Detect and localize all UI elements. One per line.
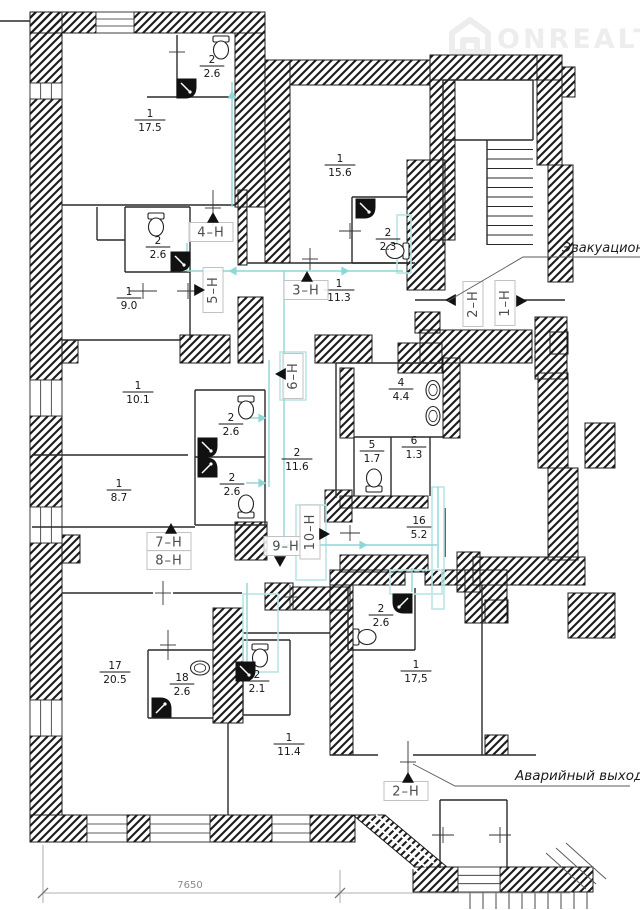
room-number: 1 [116, 478, 123, 490]
room-number: 16 [412, 515, 426, 527]
room-area: 11.6 [285, 461, 309, 473]
shower-arrow-head [182, 263, 185, 266]
wall-hatch [500, 867, 593, 892]
window [30, 700, 62, 736]
shower-icon [356, 199, 375, 218]
watermark-text: ONREALT [497, 24, 640, 55]
dimension-label: 7650 [177, 880, 202, 891]
wall-hatch [340, 496, 428, 508]
shower-arrow-head [367, 210, 370, 213]
wall-hatch [210, 815, 272, 842]
wall-hatch [443, 358, 460, 438]
evacuation-label: Эвакуацион [561, 241, 640, 256]
unit-label: 5–Н [203, 268, 223, 313]
wall-hatch [413, 867, 458, 892]
wall-hatch [325, 490, 352, 522]
wall-hatch [235, 522, 267, 560]
room-number: 2 [228, 412, 235, 424]
shower-icon [198, 458, 217, 477]
sink-icon [426, 407, 440, 426]
room-area: 2.3 [380, 241, 397, 253]
floor-plan-drawing: ONREALT 117.522.6115.622.322.619.0111.31… [0, 0, 640, 910]
room-number: 2 [155, 235, 162, 247]
unit-label-text: 9–Н [272, 540, 300, 555]
toilet-icon [353, 629, 376, 645]
room-area: 2.6 [204, 68, 221, 80]
shower-icon [393, 594, 412, 613]
room-number: 1 [337, 153, 344, 165]
wall-hatch [485, 735, 508, 755]
toilet-icon [238, 396, 254, 419]
wall-hatch [407, 160, 445, 290]
room-area: 2.1 [249, 683, 266, 695]
wall-hatch [330, 570, 405, 585]
room-area: 2.6 [373, 617, 390, 629]
toilet-icon [238, 495, 254, 518]
wall-hatch [398, 343, 442, 373]
wall-hatch [235, 33, 265, 207]
wall-hatch [265, 60, 290, 263]
wall-hatch [485, 600, 508, 623]
room-area: 20.5 [103, 674, 126, 686]
wall-hatch [62, 340, 78, 363]
unit-label-text: 2–Н [392, 785, 420, 800]
shower-arrow-head [188, 90, 191, 93]
sink-icon [191, 661, 210, 675]
room-number: 1 [126, 286, 133, 298]
shower-icon [171, 252, 190, 271]
toilet-icon [213, 36, 229, 59]
unit-label-text: 4–Н [197, 226, 225, 241]
wall-hatch [548, 468, 578, 560]
room-number: 2 [378, 603, 385, 615]
toilet-icon [366, 469, 382, 492]
room-area: 15.6 [328, 167, 352, 179]
unit-label: 6–Н [283, 354, 303, 399]
unit-label-text: 10–Н [303, 514, 318, 551]
unit-label: 4–Н [189, 223, 233, 242]
room-number: 1 [147, 108, 154, 120]
window [87, 815, 127, 842]
room-area: 17,5 [404, 673, 427, 685]
room-area: 5.2 [411, 529, 428, 541]
sink-outer [426, 407, 440, 426]
room-area: 11.3 [327, 292, 350, 304]
wall-hatch [548, 165, 573, 282]
toilet-bowl [149, 218, 164, 236]
room-area: 2.6 [150, 249, 167, 261]
unit-label: 2–Н [463, 282, 483, 327]
unit-label: 7–Н [147, 533, 191, 552]
toilet-icon [148, 213, 164, 236]
window [30, 507, 62, 543]
wall-hatch [30, 99, 62, 380]
shower-arrow-head [163, 702, 166, 705]
shower-icon [236, 662, 255, 681]
room-area: 17.5 [138, 122, 161, 134]
room-number: 1 [135, 380, 142, 392]
window [30, 380, 62, 416]
unit-label-text: 6–Н [286, 362, 301, 390]
room-number: 1 [336, 278, 343, 290]
window [30, 83, 62, 99]
toilet-bowl [367, 469, 382, 487]
sink-outer [191, 661, 210, 675]
unit-label-text: 7–Н [155, 536, 183, 551]
wall-hatch [62, 535, 80, 563]
room-area: 8.7 [111, 492, 128, 504]
toilet-bowl [358, 630, 376, 645]
wall-hatch [238, 190, 247, 265]
window [96, 12, 134, 33]
room-area: 1.7 [364, 453, 381, 465]
wall-hatch [238, 297, 263, 363]
room-number: 2 [209, 54, 216, 66]
room-area: 2.6 [223, 426, 240, 438]
sink-outer [426, 381, 440, 400]
wall-hatch [265, 583, 293, 610]
room-number: 2 [229, 472, 236, 484]
room-number: 2 [254, 669, 261, 681]
room-number: 6 [411, 435, 418, 447]
wall-hatch [550, 332, 568, 354]
shower-arrow-head [397, 605, 400, 608]
toilet-bowl [239, 495, 254, 513]
room-area: 9.0 [121, 300, 138, 312]
room-area: 1.3 [406, 449, 423, 461]
unit-label: 10–Н [300, 505, 320, 559]
room-number: 1 [286, 732, 293, 744]
unit-label: 1–Н [495, 281, 515, 326]
wall-hatch [127, 815, 150, 842]
room-number: 5 [369, 439, 376, 451]
wall-hatch [30, 416, 62, 507]
room-area: 4.4 [393, 391, 410, 403]
wall-hatch [30, 815, 87, 842]
wall-hatch [30, 736, 62, 815]
wall-hatch [293, 587, 350, 610]
unit-label-text: 5–Н [206, 276, 221, 304]
room-area: 2.6 [174, 686, 191, 698]
shower-icon [152, 698, 171, 717]
wall-hatch [340, 368, 354, 438]
window [272, 815, 310, 842]
window [150, 815, 210, 842]
shower-arrow-head [247, 673, 250, 676]
wall-hatch [585, 423, 615, 468]
wall-hatch [538, 373, 568, 468]
unit-label: 8–Н [147, 551, 191, 570]
toilet-bowl [239, 401, 254, 419]
emergency-exit-label: Аварийный выход [514, 768, 640, 784]
wall-hatch [290, 60, 430, 85]
shower-arrow-head [209, 449, 212, 452]
room-area: 2.6 [224, 486, 241, 498]
room-number: 2 [294, 447, 301, 459]
shower-icon [177, 79, 196, 98]
unit-label-text: 1–Н [498, 289, 513, 317]
wall-hatch [562, 67, 575, 97]
wall-hatch [310, 815, 355, 842]
wall-hatch [315, 335, 372, 363]
room-number: 4 [398, 377, 405, 389]
window [458, 867, 500, 892]
wall-hatch [180, 335, 230, 363]
unit-label: 3–Н [284, 281, 328, 300]
shower-icon [198, 438, 217, 457]
unit-label-text: 2–Н [466, 290, 481, 318]
wall-hatch [537, 55, 562, 165]
wall-hatch [30, 12, 62, 83]
room-area: 10.1 [126, 394, 149, 406]
room-number: 1 [413, 659, 420, 671]
room-number: 2 [385, 227, 392, 239]
unit-label: 2–Н [384, 782, 428, 801]
sink-icon [426, 381, 440, 400]
wall-hatch [568, 593, 615, 638]
wall-hatch [134, 12, 265, 33]
toilet-bowl [214, 41, 229, 59]
unit-label-text: 8–Н [155, 554, 183, 569]
unit-label-text: 3–Н [292, 284, 320, 299]
room-area: 11.4 [277, 746, 301, 758]
floor-plan-page: ONREALT 117.522.6115.622.322.619.0111.31… [0, 0, 640, 910]
wall-hatch [425, 570, 465, 585]
room-number: 18 [175, 672, 188, 684]
room-number: 17 [108, 660, 121, 672]
wall-hatch [30, 543, 62, 700]
shower-arrow-head [209, 462, 212, 465]
